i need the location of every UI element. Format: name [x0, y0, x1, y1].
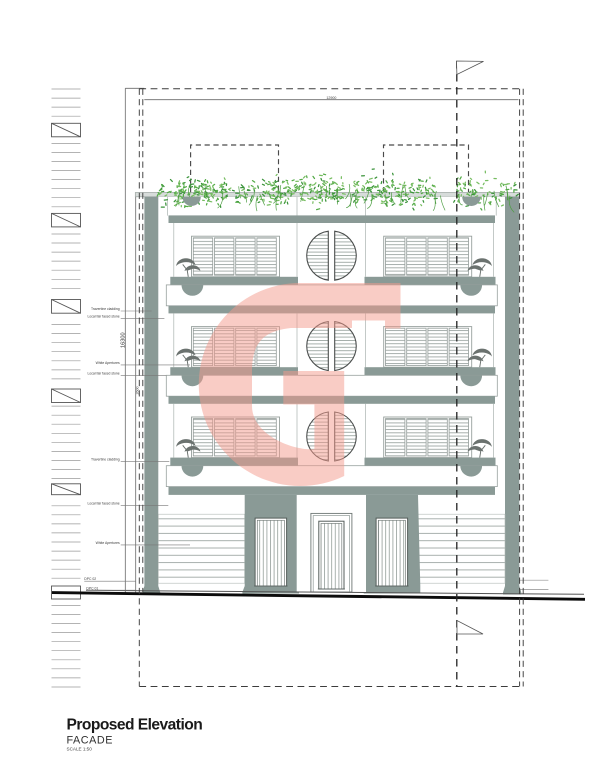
- svg-text:SCALE 1:50: SCALE 1:50: [67, 747, 93, 752]
- svg-text:12900: 12900: [326, 96, 336, 100]
- svg-text:2600: 2600: [135, 387, 139, 395]
- svg-text:Local fair faced stone: Local fair faced stone: [87, 371, 119, 375]
- svg-text:Local fair faced stone: Local fair faced stone: [87, 501, 119, 505]
- svg-text:Local fair faced stone: Local fair faced stone: [87, 315, 119, 319]
- svg-text:DPC 02: DPC 02: [84, 577, 96, 581]
- svg-text:16300: 16300: [120, 332, 126, 348]
- svg-text:DPC 01: DPC 01: [86, 586, 98, 590]
- svg-text:Travertine cladding: Travertine cladding: [91, 307, 120, 311]
- svg-text:Travertine cladding: Travertine cladding: [91, 457, 120, 461]
- svg-text:FACADE: FACADE: [67, 735, 114, 747]
- svg-text:White Apertures: White Apertures: [96, 541, 120, 545]
- svg-text:Proposed Elevation: Proposed Elevation: [67, 717, 203, 734]
- svg-text:White Apertures: White Apertures: [96, 361, 120, 365]
